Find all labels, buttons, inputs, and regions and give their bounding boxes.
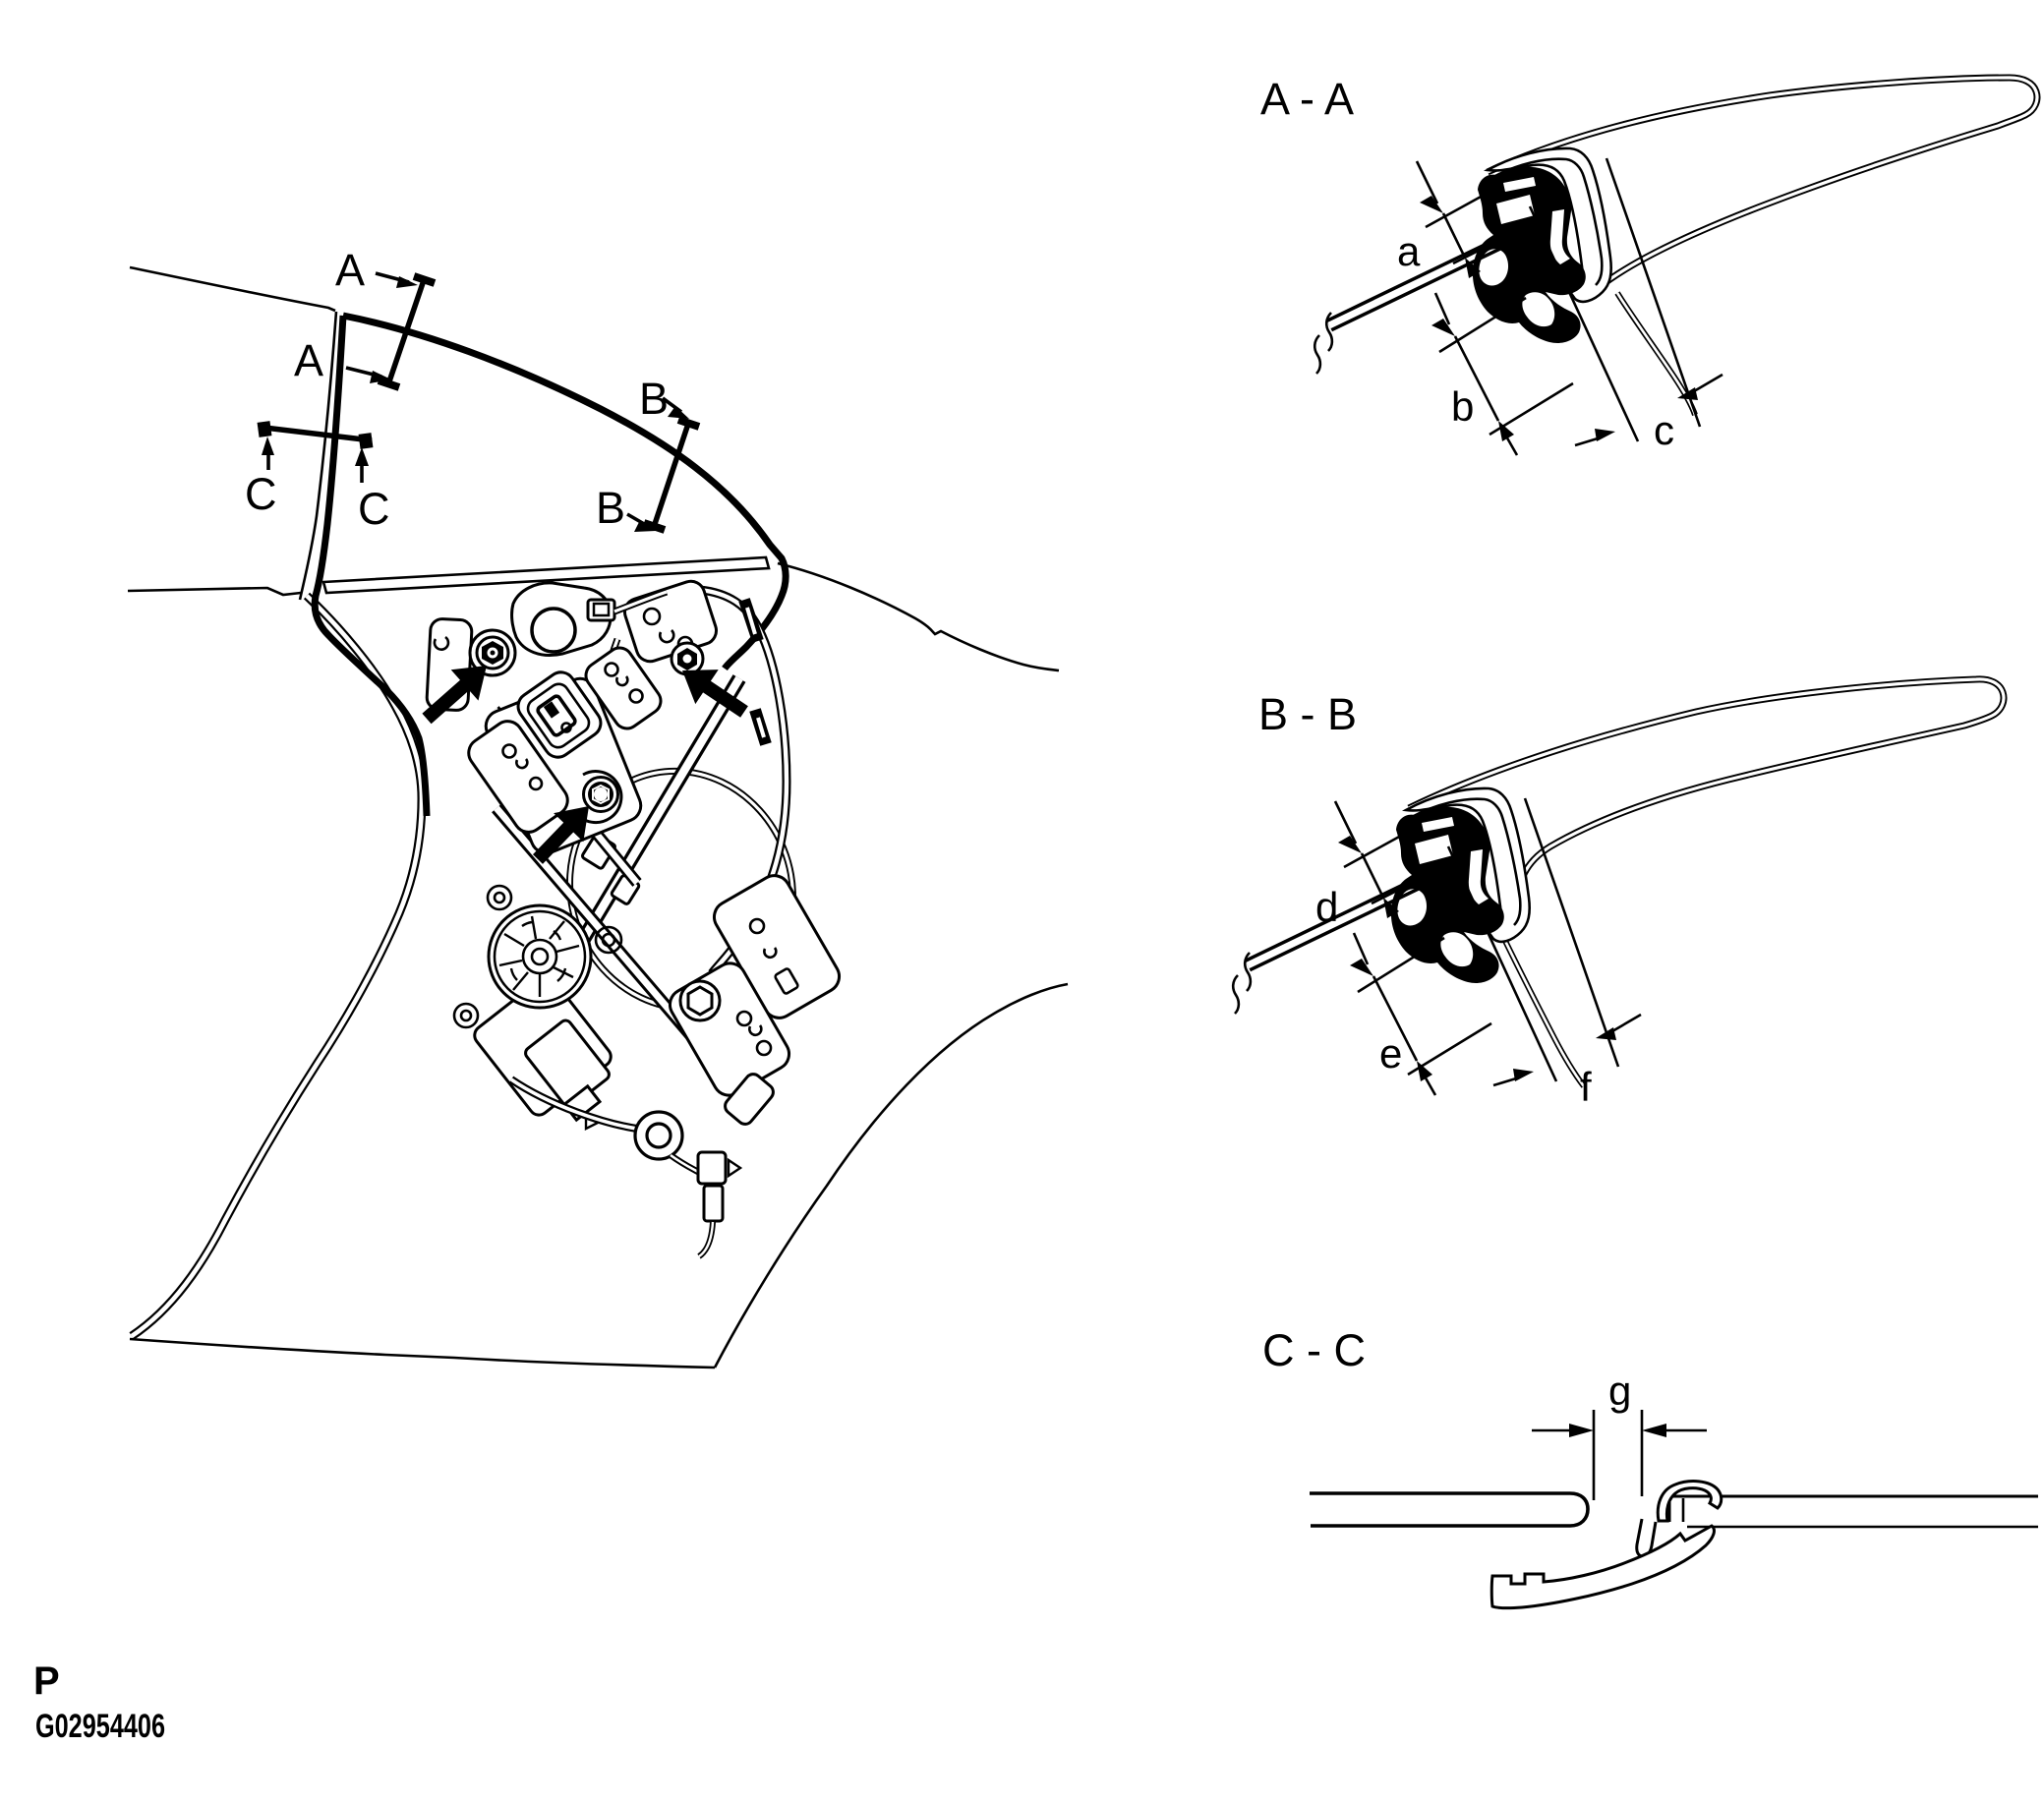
- svg-text:A: A: [335, 245, 365, 295]
- svg-text:f: f: [1580, 1064, 1592, 1110]
- svg-text:B - B: B - B: [1258, 689, 1357, 739]
- svg-text:G02954406: G02954406: [35, 1708, 165, 1745]
- svg-text:a: a: [1397, 228, 1421, 274]
- svg-text:C: C: [358, 484, 390, 534]
- svg-text:B: B: [639, 374, 669, 424]
- svg-text:C - C: C - C: [1262, 1325, 1366, 1375]
- svg-text:A: A: [294, 335, 323, 385]
- svg-text:B: B: [596, 483, 625, 533]
- svg-text:P: P: [33, 1659, 60, 1703]
- svg-text:A - A: A - A: [1260, 74, 1354, 124]
- svg-text:C: C: [245, 469, 277, 519]
- svg-text:e: e: [1379, 1030, 1402, 1077]
- svg-text:c: c: [1654, 407, 1674, 453]
- svg-text:g: g: [1608, 1368, 1631, 1414]
- svg-text:b: b: [1451, 383, 1474, 430]
- svg-text:d: d: [1315, 884, 1338, 930]
